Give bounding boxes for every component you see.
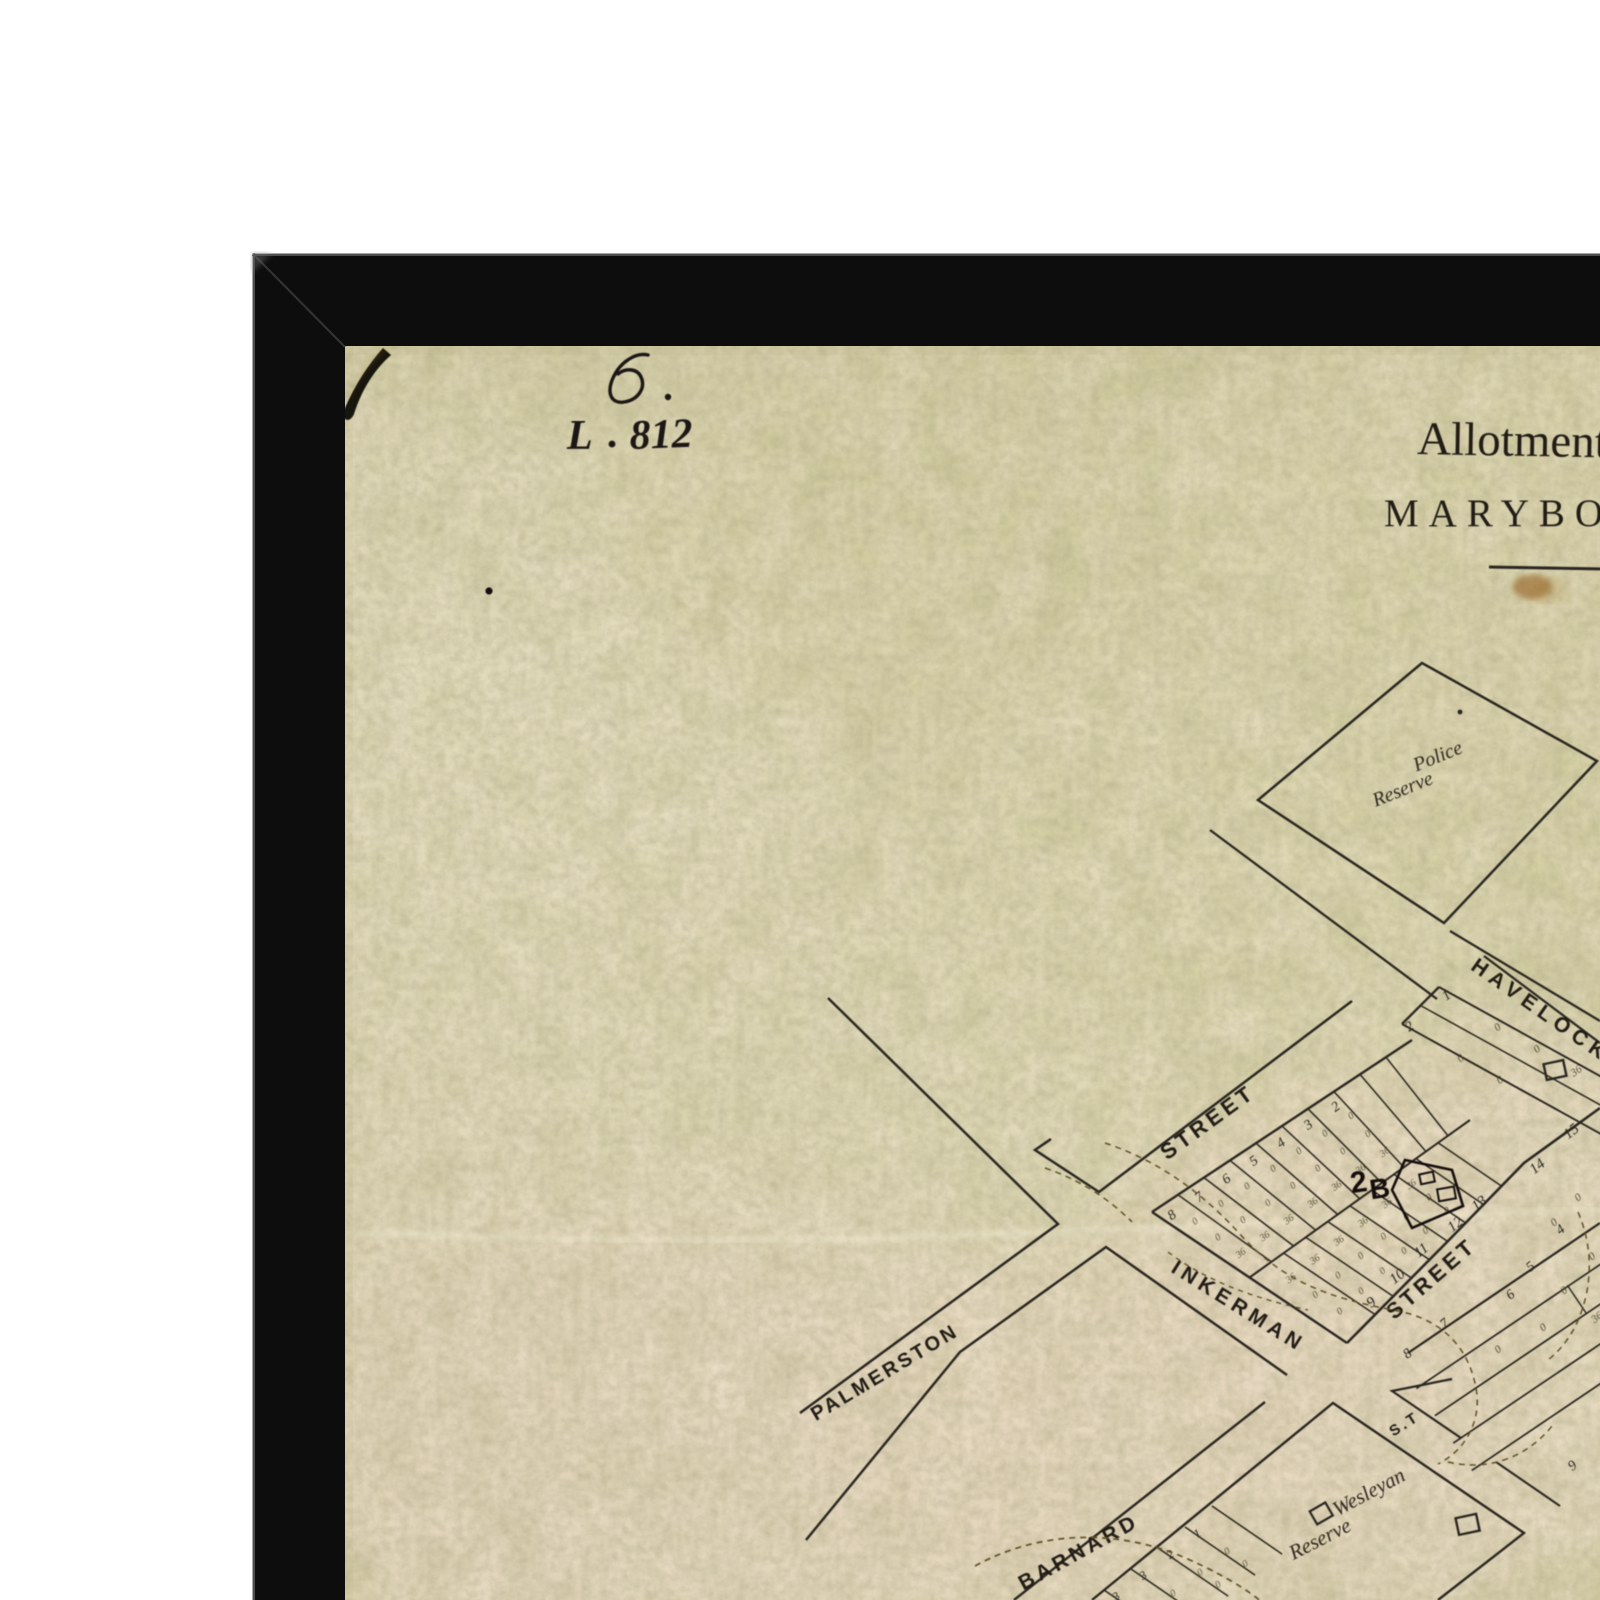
- svg-text:L: L: [566, 413, 593, 459]
- svg-text:MARYBO: MARYBO: [1384, 492, 1600, 535]
- svg-text:812: 812: [629, 411, 694, 459]
- svg-text:Allotments: Allotments: [1417, 413, 1600, 469]
- svg-text:B: B: [1368, 1172, 1392, 1206]
